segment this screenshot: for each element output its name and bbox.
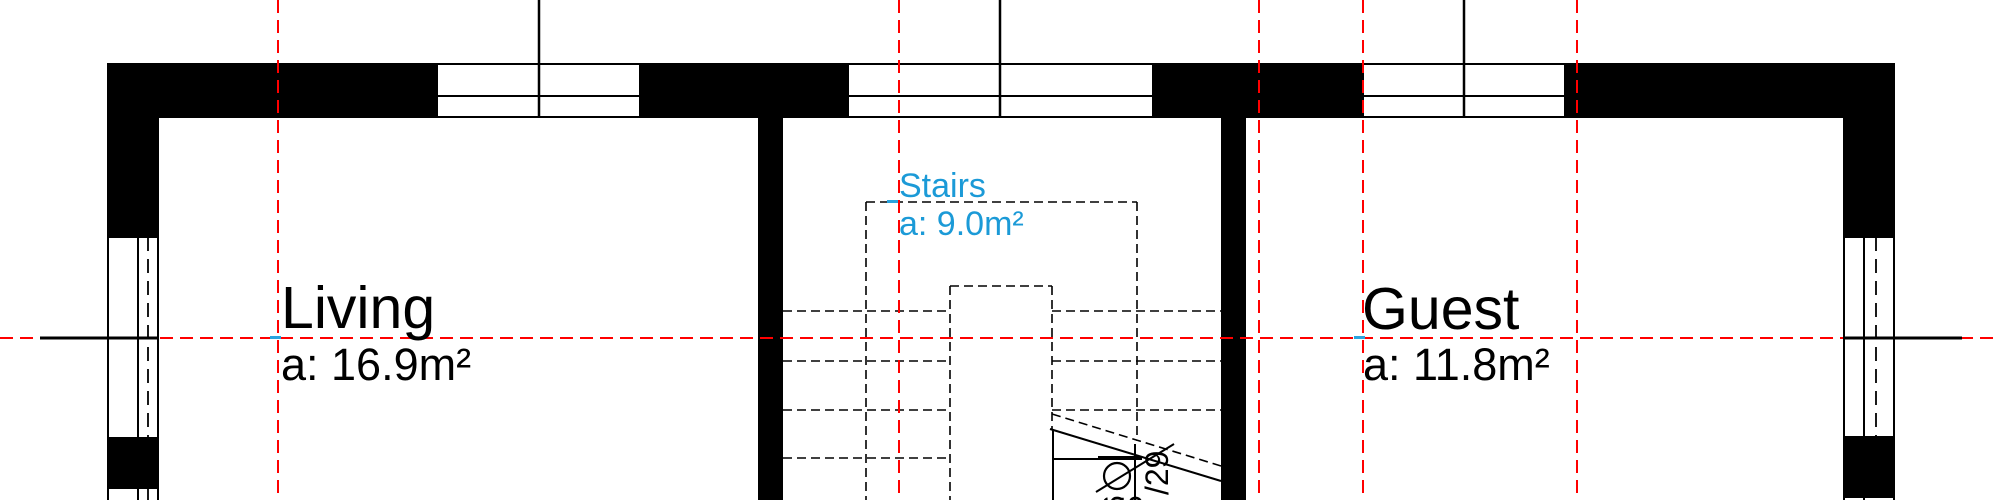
top-window-1[interactable] (437, 0, 640, 117)
wall-left-segment-1[interactable] (107, 63, 159, 237)
room-name[interactable]: Stairs (899, 167, 986, 205)
wall-right-segment-1[interactable] (1843, 63, 1895, 237)
wall-right-sill[interactable] (1843, 437, 1895, 497)
room-label-living[interactable]: Living a: 16.9m² (281, 275, 471, 390)
room-label-guest[interactable]: Guest a: 11.8m² (1362, 276, 1550, 390)
wall-living-stairs[interactable] (758, 118, 783, 500)
room-area[interactable]: a: 16.9m² (281, 339, 471, 390)
top-window-2[interactable] (1363, 0, 1565, 117)
room-area[interactable]: a: 11.8m² (1363, 339, 1550, 390)
wall-left-sill[interactable] (107, 438, 159, 488)
interior-walls[interactable] (758, 118, 1246, 500)
left-window-lower[interactable] (107, 488, 159, 500)
wall-stairs-guest[interactable] (1221, 118, 1246, 500)
top-door-opening[interactable] (848, 0, 1153, 117)
stair-tread-text: /29 (1139, 451, 1175, 495)
room-name[interactable]: Living (281, 275, 435, 341)
stair-partial-glyph: 5 (1116, 495, 1149, 500)
anchor-tick-living (270, 336, 281, 339)
wall-top-segment-2[interactable] (640, 63, 848, 118)
room-area[interactable]: a: 9.0m² (899, 205, 1024, 243)
room-label-stairs[interactable]: Stairs a: 9.0m² (899, 167, 1024, 243)
room-name[interactable]: Guest (1362, 276, 1519, 342)
floorplan-canvas[interactable]: Living a: 16.9m² Stairs a: 9.0m² Guest a… (0, 0, 2000, 500)
anchor-tick-stairs (887, 200, 898, 203)
